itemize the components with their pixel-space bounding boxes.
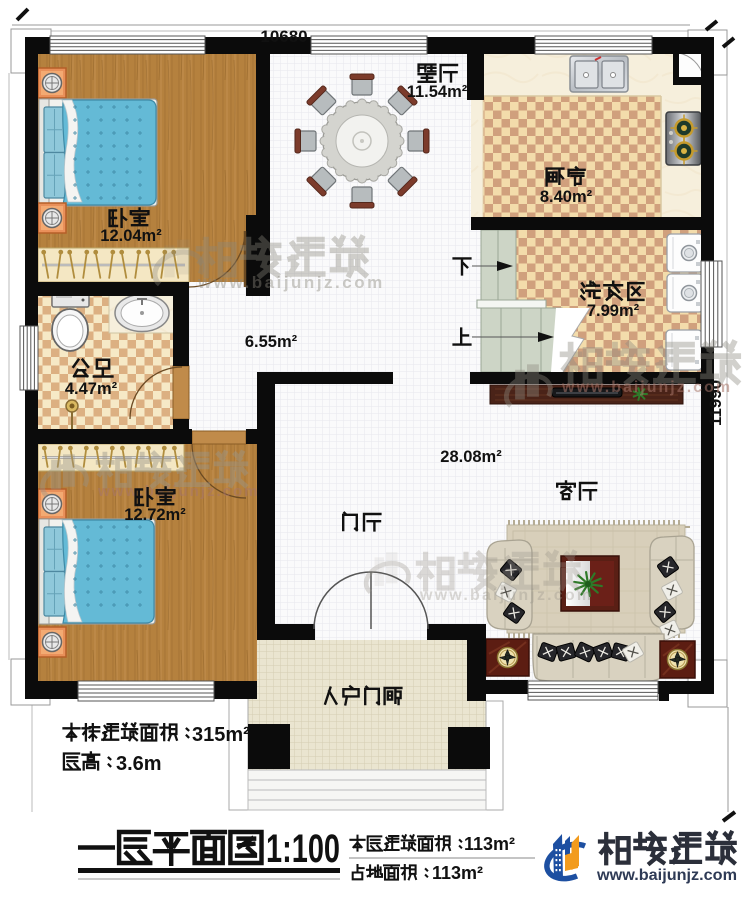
svg-text:12.72m²: 12.72m² <box>124 506 186 524</box>
svg-text:113m²: 113m² <box>432 863 483 883</box>
svg-text:10680: 10680 <box>260 27 307 46</box>
svg-text:315m²: 315m² <box>192 724 250 746</box>
svg-text:www.baijunjz.com: www.baijunjz.com <box>561 379 732 396</box>
svg-text:11.54m²: 11.54m² <box>407 83 468 101</box>
svg-text:4.47m²: 4.47m² <box>65 380 118 398</box>
svg-text:www.baijunjz.com: www.baijunjz.com <box>596 867 737 884</box>
svg-text:8.40m²: 8.40m² <box>540 188 593 206</box>
svg-text:12.04m²: 12.04m² <box>100 227 162 245</box>
svg-text:6.55m²: 6.55m² <box>245 333 298 351</box>
svg-text:www.baijunjz.com: www.baijunjz.com <box>97 483 259 500</box>
svg-text:113m²: 113m² <box>464 834 515 854</box>
svg-text:28.08m²: 28.08m² <box>440 448 502 466</box>
svg-text:1:100: 1:100 <box>266 827 340 871</box>
svg-text:www.baijunjz.com: www.baijunjz.com <box>197 273 385 292</box>
svg-text:7.99m²: 7.99m² <box>587 302 640 320</box>
svg-text:3.6m: 3.6m <box>116 753 162 775</box>
svg-text:www.baijunjz.com: www.baijunjz.com <box>419 587 593 604</box>
